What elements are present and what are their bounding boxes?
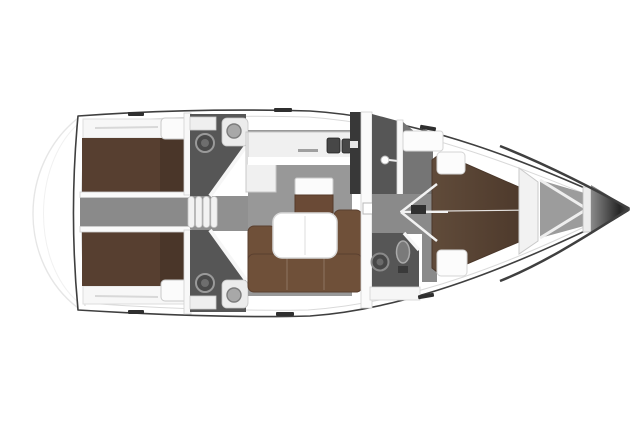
sink-basin-icon <box>227 124 241 138</box>
nav-seat <box>295 178 333 195</box>
forward-cabin-locker-top <box>437 152 465 174</box>
engine-corridor-floor <box>80 197 192 227</box>
stem-bulkhead <box>583 187 591 232</box>
forward-cabin-locker-bottom <box>437 250 467 276</box>
step-2 <box>196 197 202 228</box>
step-3 <box>203 197 209 228</box>
step-1 <box>188 197 194 228</box>
shower-column-icon <box>397 241 410 263</box>
sofa-bottom-seat <box>248 254 362 292</box>
aft-starboard-shelf-line <box>95 296 158 297</box>
toilet-bowl-icon <box>201 279 209 287</box>
cleat-icon <box>276 312 294 316</box>
galley-tall-locker <box>350 112 361 194</box>
head-aft-port-counter <box>190 117 216 130</box>
galley-locker-latch <box>350 141 358 148</box>
shower-head-icon <box>381 156 389 164</box>
cleat-icon <box>128 310 144 314</box>
galley-sink-right-icon <box>342 139 351 153</box>
toilet-bowl-icon <box>377 259 384 266</box>
door-hardware <box>411 205 426 214</box>
head-forward-drain <box>398 266 408 273</box>
head-forward <box>370 233 420 300</box>
head-aft-starboard-counter <box>190 296 216 309</box>
galley-stove-edge <box>298 149 318 152</box>
galley-counter-front <box>248 157 366 165</box>
floor-plan-canvas <box>0 0 640 426</box>
shower-partition-wall <box>397 120 403 196</box>
bow-stem-cone <box>591 185 629 234</box>
cleat-icon <box>128 112 144 116</box>
nav-chart-table <box>295 195 333 213</box>
galley-sink-left-icon <box>327 138 340 153</box>
step-4 <box>211 197 217 228</box>
engine-corridor-wall-bottom <box>80 227 192 233</box>
cleat-icon <box>274 108 292 112</box>
toilet-bowl-icon <box>201 139 209 147</box>
aft-port-shelf-line <box>95 127 158 128</box>
engine-corridor-wall-top <box>80 192 192 198</box>
head-forward-counter <box>370 287 420 300</box>
shower-forward <box>372 114 398 194</box>
collision-bulkhead <box>519 168 538 254</box>
swim-platform-outline <box>33 118 78 308</box>
forward-cabin-shelf <box>403 131 443 151</box>
yacht-floor-plan <box>0 0 640 426</box>
sink-basin-icon <box>227 288 241 302</box>
shower-forward-floor <box>372 114 398 194</box>
